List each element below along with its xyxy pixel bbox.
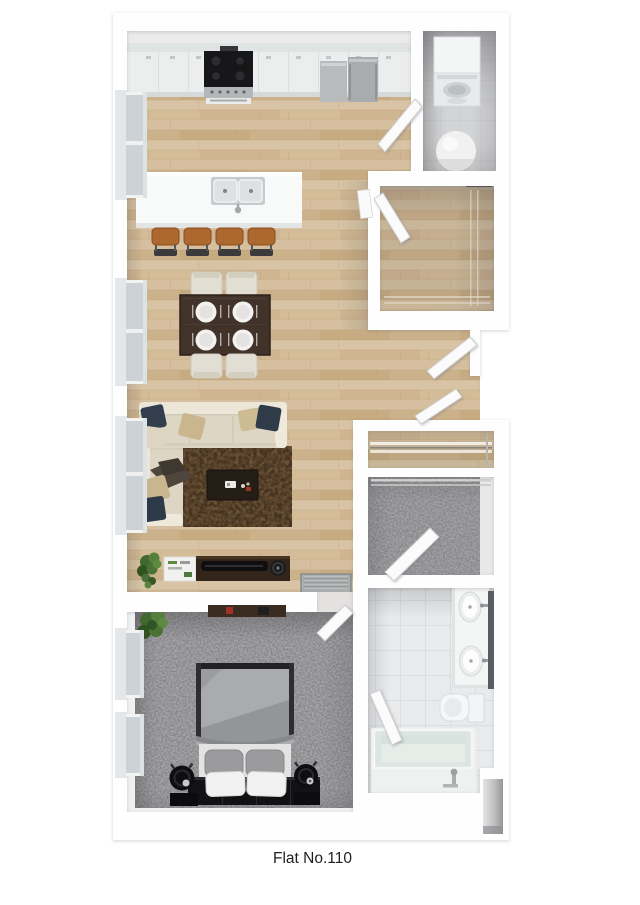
svg-text:Flat No.110: Flat No.110 bbox=[273, 850, 352, 867]
